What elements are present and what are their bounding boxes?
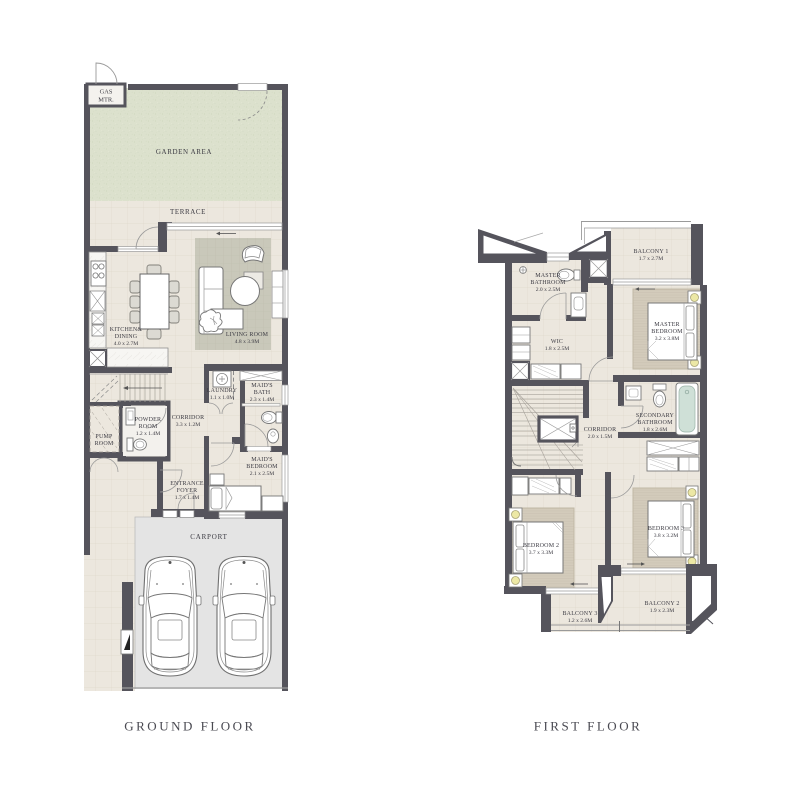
svg-text:ENTRANCE: ENTRANCE <box>170 481 204 487</box>
svg-text:GAS: GAS <box>100 89 113 96</box>
svg-text:CORRIDOR: CORRIDOR <box>584 427 617 433</box>
svg-text:1.8 x 2.6M: 1.8 x 2.6M <box>643 427 668 433</box>
svg-text:MAID'S: MAID'S <box>251 383 273 389</box>
svg-text:CARPORT: CARPORT <box>190 533 227 541</box>
svg-text:4.0 x 2.7M: 4.0 x 2.7M <box>114 341 139 347</box>
svg-text:4.8 x 3.9M: 4.8 x 3.9M <box>235 339 260 345</box>
svg-text:3.3 x 1.2M: 3.3 x 1.2M <box>176 422 201 428</box>
svg-text:1.8 x 2.5M: 1.8 x 2.5M <box>545 346 570 352</box>
svg-text:PUMP: PUMP <box>95 434 113 440</box>
svg-text:BALCONY 1: BALCONY 1 <box>633 249 668 255</box>
svg-text:2.3 x 1.4M: 2.3 x 1.4M <box>250 397 275 403</box>
svg-text:MAID'S: MAID'S <box>251 457 273 463</box>
svg-text:TERRACE: TERRACE <box>170 208 206 216</box>
svg-text:1.2 x 1.4M: 1.2 x 1.4M <box>136 431 161 437</box>
svg-text:1.7 x 2.7M: 1.7 x 2.7M <box>639 256 664 262</box>
svg-text:2.1 x 2.5M: 2.1 x 2.5M <box>250 471 275 477</box>
svg-text:1.9 x 2.3M: 1.9 x 2.3M <box>650 608 675 614</box>
svg-text:GARDEN AREA: GARDEN AREA <box>156 148 212 156</box>
svg-text:BALCONY 2: BALCONY 2 <box>644 601 679 607</box>
svg-text:BEDROOM 2: BEDROOM 2 <box>523 543 559 549</box>
svg-text:MTR.: MTR. <box>98 97 114 104</box>
svg-text:MASTER: MASTER <box>535 273 561 279</box>
svg-text:3.7 x 3.3M: 3.7 x 3.3M <box>529 550 554 556</box>
svg-text:BATHROOM: BATHROOM <box>530 280 566 286</box>
svg-text:KITCHEN&: KITCHEN& <box>110 327 143 333</box>
svg-text:1.1 x 1.0M: 1.1 x 1.0M <box>210 395 235 401</box>
svg-text:SECONDARY: SECONDARY <box>636 413 675 419</box>
svg-text:LAUNDRY: LAUNDRY <box>207 388 238 394</box>
svg-text:1.2 x 2.6M: 1.2 x 2.6M <box>568 618 593 624</box>
svg-text:BATHROOM: BATHROOM <box>637 420 673 426</box>
svg-text:FOYER: FOYER <box>177 488 198 494</box>
svg-text:BEDROOM: BEDROOM <box>651 329 683 335</box>
svg-text:GROUND FLOOR: GROUND FLOOR <box>124 719 255 734</box>
svg-text:WIC: WIC <box>551 339 563 345</box>
svg-text:CORRIDOR: CORRIDOR <box>172 415 205 421</box>
svg-text:1.7 x 1.4M: 1.7 x 1.4M <box>175 495 200 501</box>
svg-text:BALCONY 3: BALCONY 3 <box>562 611 597 617</box>
svg-text:LIVING ROOM: LIVING ROOM <box>226 332 269 338</box>
svg-text:FIRST FLOOR: FIRST FLOOR <box>534 719 643 734</box>
svg-text:2.0 x 1.5M: 2.0 x 1.5M <box>588 434 613 440</box>
svg-text:3.2 x 3.8M: 3.2 x 3.8M <box>655 336 680 342</box>
svg-text:ROOM: ROOM <box>95 441 114 447</box>
svg-text:DINING: DINING <box>115 334 138 340</box>
svg-text:MASTER: MASTER <box>654 322 680 328</box>
svg-text:BEDROOM 3: BEDROOM 3 <box>648 526 684 532</box>
svg-text:BATH: BATH <box>254 390 271 396</box>
svg-text:ROOM: ROOM <box>139 424 158 430</box>
svg-text:3.8 x 3.2M: 3.8 x 3.2M <box>654 533 679 539</box>
svg-text:POWDER: POWDER <box>135 417 162 423</box>
svg-text:2.0 x 2.5M: 2.0 x 2.5M <box>536 287 561 293</box>
svg-text:BEDROOM: BEDROOM <box>246 464 278 470</box>
